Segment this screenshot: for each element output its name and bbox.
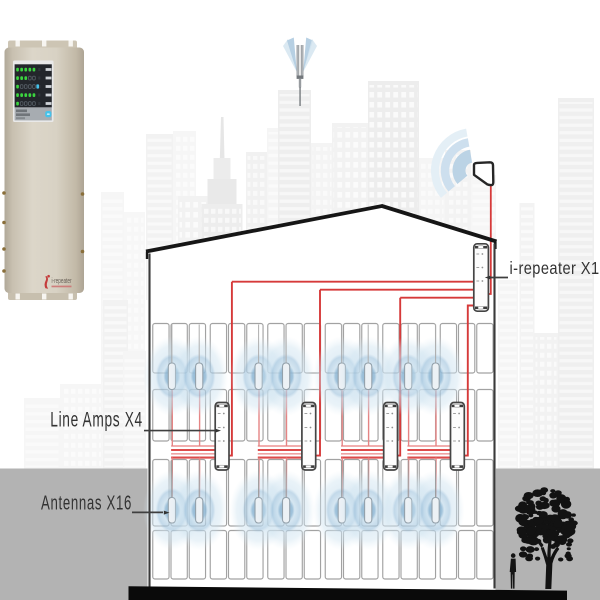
svg-text:Antennas X16: Antennas X16 [41, 493, 132, 515]
svg-text:i-repeater: i-repeater [52, 276, 72, 285]
svg-text:Line Amps X4: Line Amps X4 [50, 409, 143, 432]
svg-text:i-repeater X1: i-repeater X1 [510, 258, 600, 278]
